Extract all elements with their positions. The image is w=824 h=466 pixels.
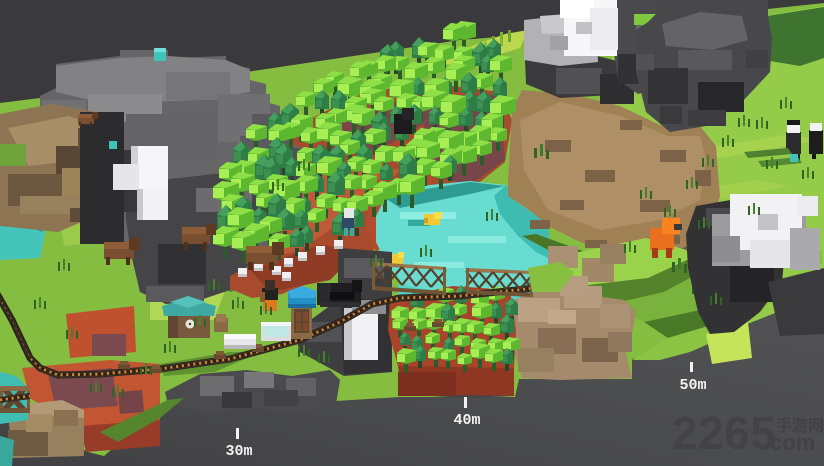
svg-text:50m: 50m xyxy=(679,377,706,394)
svg-text:2265: 2265 xyxy=(672,407,776,459)
svg-text:30m: 30m xyxy=(225,443,252,460)
svg-text:40m: 40m xyxy=(453,412,480,429)
svg-text:.com: .com xyxy=(764,430,815,455)
